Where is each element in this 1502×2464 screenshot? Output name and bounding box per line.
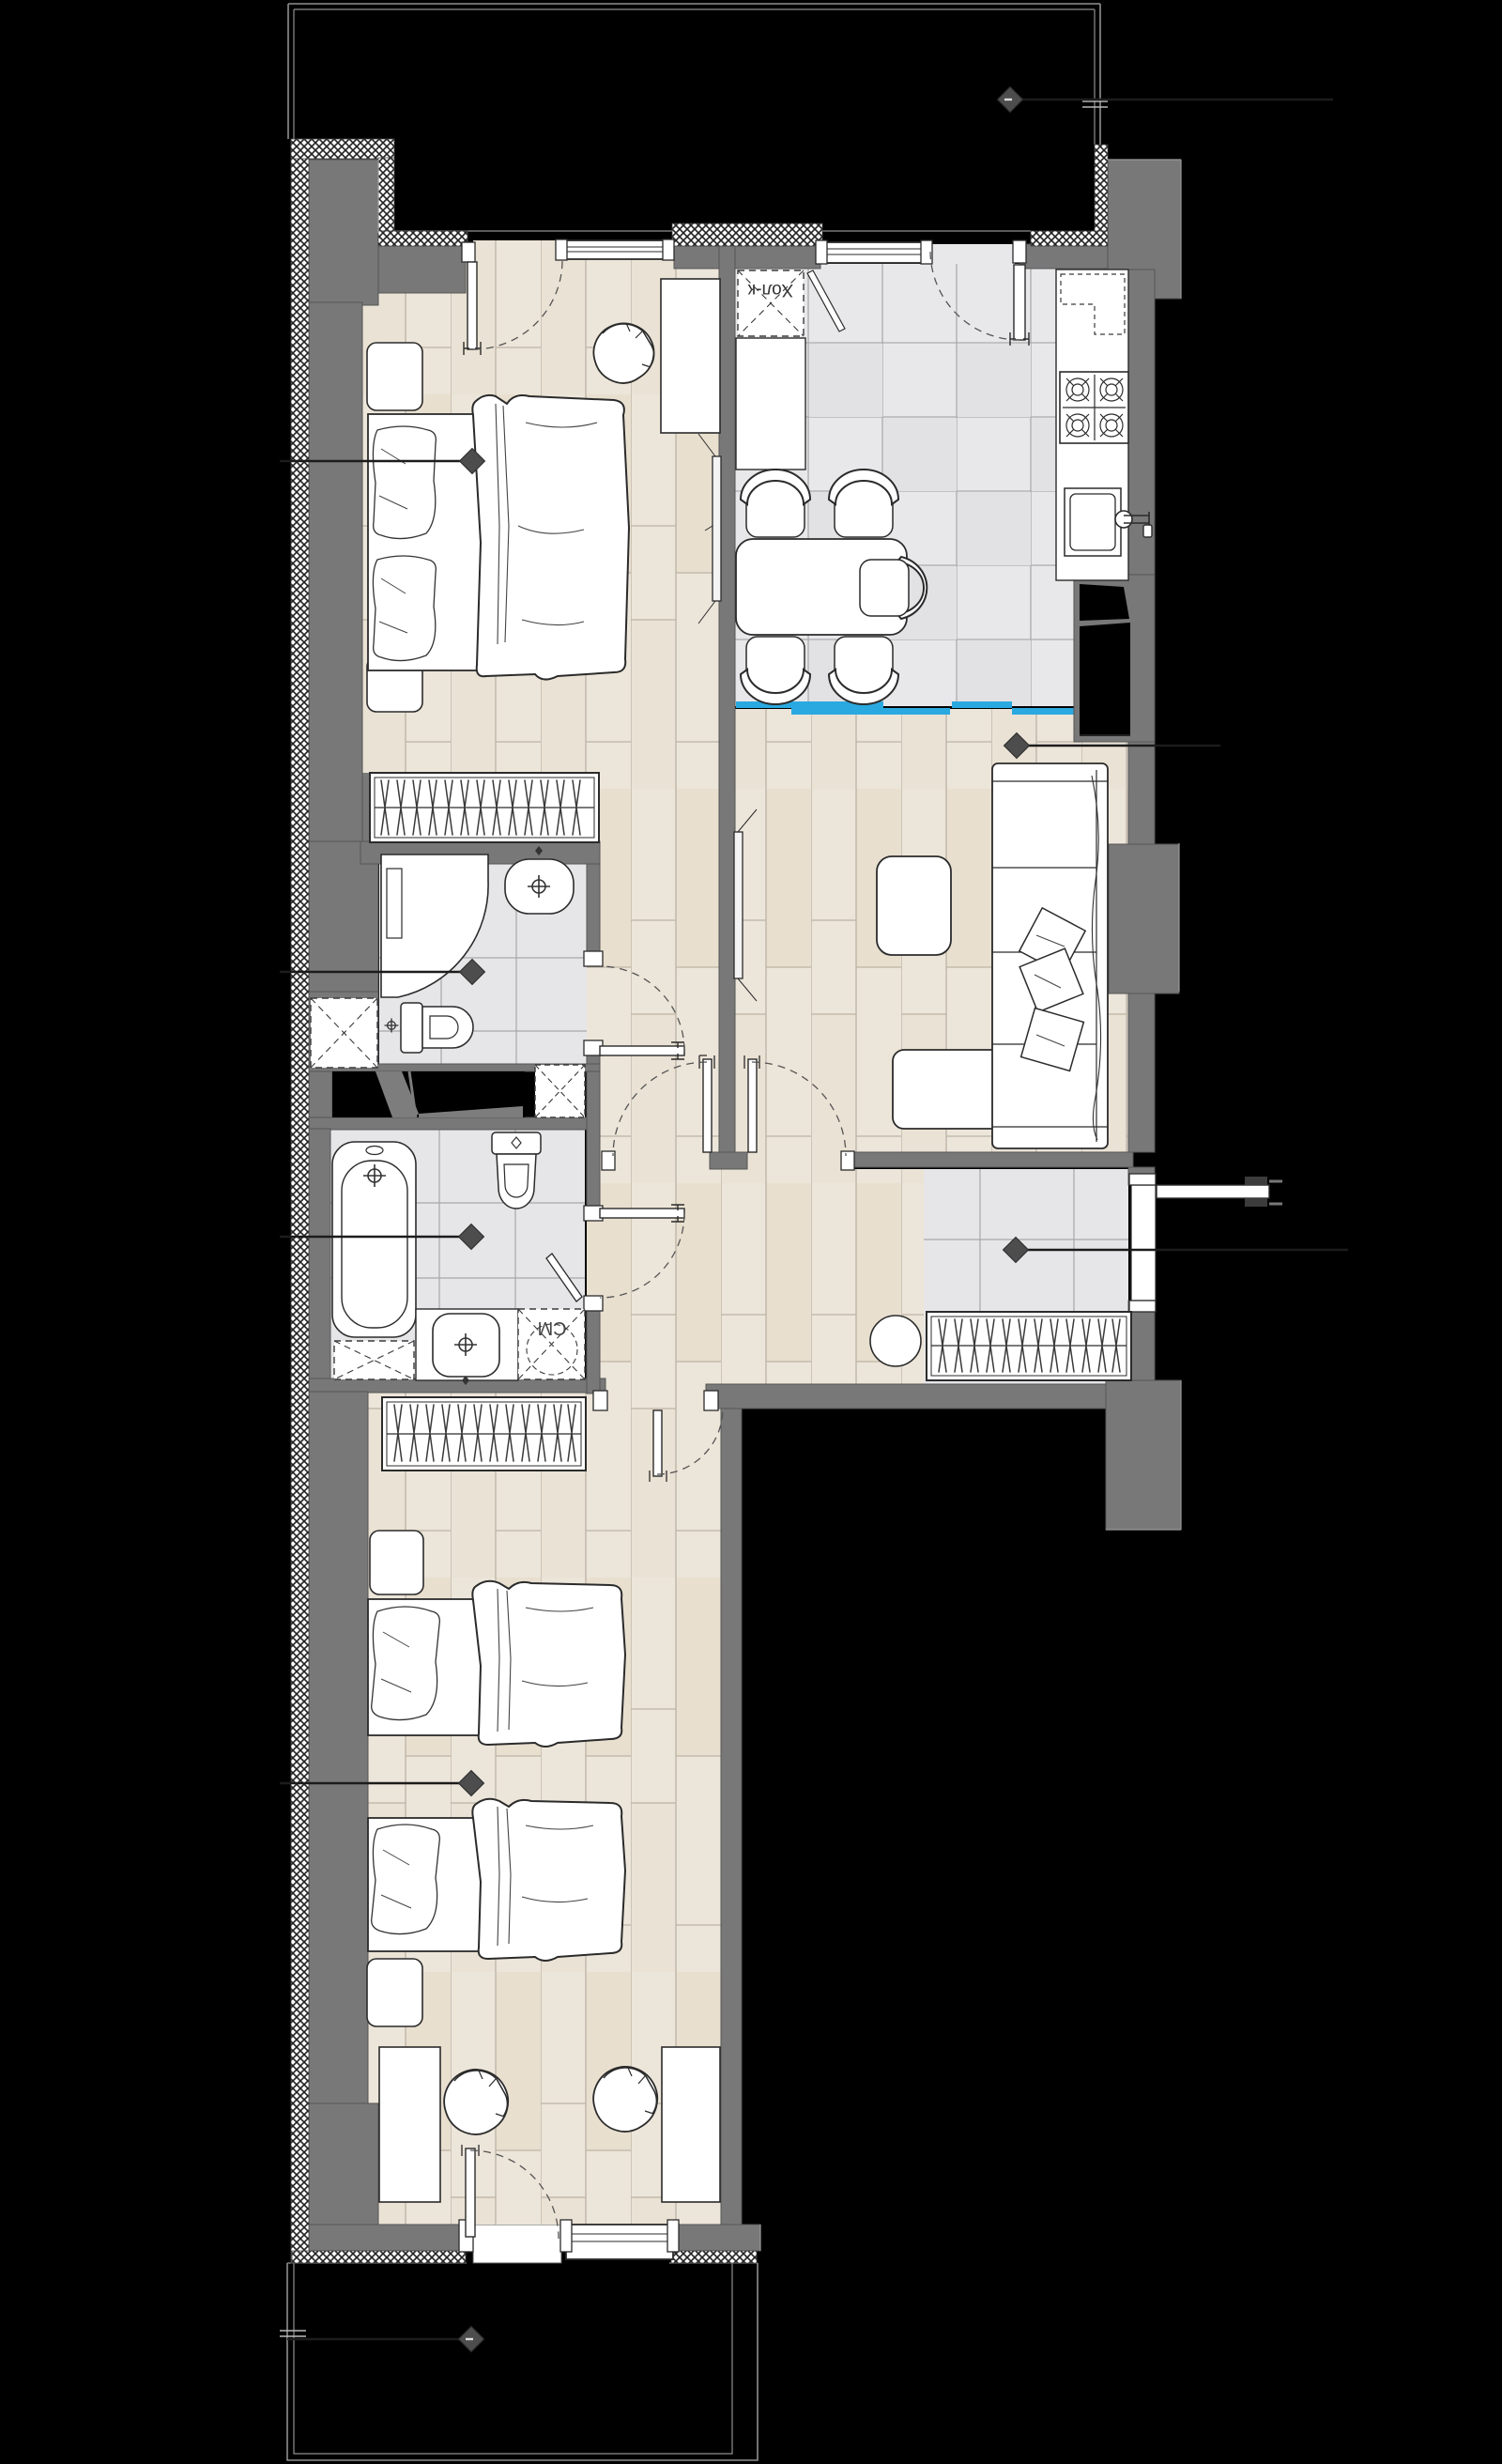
svg-text:Хол-к: Хол-к <box>747 280 793 300</box>
svg-text:СМ: СМ <box>538 1317 567 1338</box>
